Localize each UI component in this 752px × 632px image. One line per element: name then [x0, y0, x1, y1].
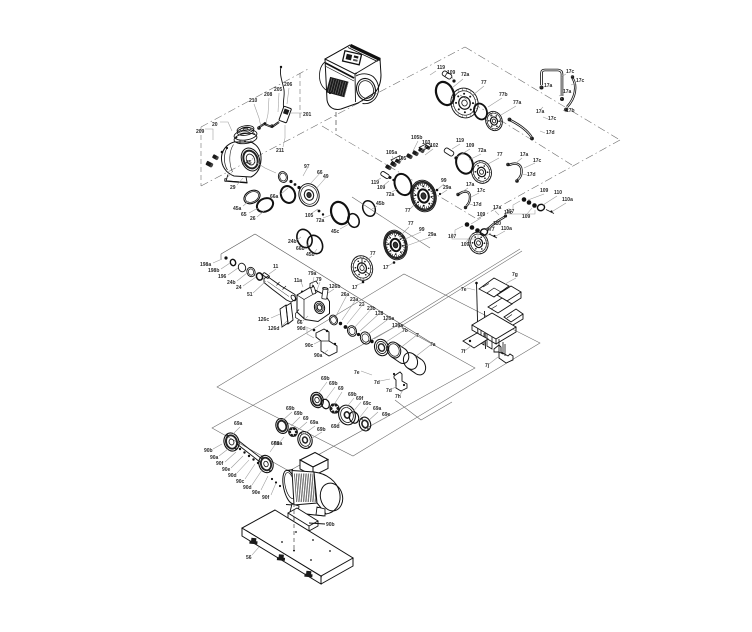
- svg-text:56: 56: [246, 555, 252, 561]
- svg-text:105b: 105b: [411, 135, 422, 141]
- svg-text:109: 109: [522, 214, 531, 220]
- svg-text:7g: 7g: [512, 272, 518, 278]
- svg-text:109: 109: [447, 70, 456, 76]
- svg-text:208: 208: [264, 92, 273, 98]
- svg-text:126c: 126c: [258, 317, 269, 323]
- svg-text:24b: 24b: [288, 239, 297, 245]
- svg-text:17a: 17a: [493, 205, 502, 211]
- svg-text:17a: 17a: [520, 152, 529, 158]
- svg-text:69b: 69b: [294, 411, 303, 417]
- svg-text:77: 77: [370, 251, 376, 257]
- svg-text:7d: 7d: [374, 380, 380, 386]
- svg-text:126d: 126d: [268, 326, 279, 332]
- svg-text:69c: 69c: [363, 401, 372, 407]
- svg-text:99: 99: [441, 178, 447, 184]
- svg-text:69a: 69a: [310, 420, 319, 426]
- svg-text:90d: 90d: [297, 326, 306, 332]
- svg-text:7d: 7d: [386, 388, 392, 394]
- svg-text:119: 119: [437, 65, 445, 71]
- svg-text:17c: 17c: [576, 78, 585, 84]
- svg-text:110a: 110a: [501, 226, 512, 232]
- svg-text:119: 119: [456, 138, 464, 144]
- svg-text:17: 17: [352, 285, 358, 291]
- svg-text:24: 24: [236, 285, 242, 291]
- svg-text:77: 77: [408, 221, 414, 227]
- svg-text:72a: 72a: [461, 72, 470, 78]
- svg-text:69: 69: [338, 386, 344, 392]
- svg-text:17a: 17a: [563, 89, 572, 95]
- svg-text:69b: 69b: [329, 381, 338, 387]
- svg-text:90e: 90e: [252, 490, 261, 496]
- svg-text:201: 201: [303, 112, 312, 118]
- svg-text:77: 77: [497, 152, 503, 158]
- svg-text:24b: 24b: [227, 280, 236, 286]
- svg-text:102: 102: [430, 143, 439, 149]
- svg-text:105: 105: [305, 213, 314, 219]
- svg-text:17d: 17d: [546, 130, 555, 136]
- svg-text:206: 206: [284, 82, 293, 88]
- svg-text:45b: 45b: [306, 252, 315, 258]
- svg-text:17: 17: [383, 265, 389, 271]
- svg-text:29: 29: [230, 185, 236, 191]
- svg-text:205: 205: [274, 87, 283, 93]
- svg-text:109: 109: [377, 185, 386, 191]
- svg-text:17b: 17b: [566, 108, 575, 114]
- svg-text:69b: 69b: [317, 427, 326, 433]
- svg-text:17d: 17d: [473, 202, 482, 208]
- svg-text:26: 26: [250, 216, 256, 222]
- svg-text:69d: 69d: [331, 424, 340, 430]
- svg-text:110: 110: [554, 190, 562, 196]
- svg-text:7f: 7f: [461, 349, 466, 355]
- svg-text:69: 69: [303, 416, 309, 422]
- svg-text:126b: 126b: [329, 284, 340, 290]
- svg-text:99: 99: [419, 227, 425, 233]
- svg-text:29a: 29a: [428, 232, 437, 238]
- svg-text:209: 209: [196, 129, 205, 135]
- svg-text:90b: 90b: [204, 448, 213, 454]
- svg-text:90c: 90c: [305, 343, 314, 349]
- svg-text:109: 109: [461, 242, 470, 248]
- svg-text:69a: 69a: [234, 421, 243, 427]
- svg-text:45: 45: [246, 160, 252, 166]
- svg-text:105a: 105a: [386, 150, 397, 156]
- svg-text:65: 65: [241, 212, 247, 218]
- svg-text:90d: 90d: [243, 485, 252, 491]
- svg-text:66b: 66b: [296, 246, 305, 252]
- svg-text:90a: 90a: [314, 353, 323, 359]
- svg-text:90f: 90f: [262, 495, 270, 501]
- svg-text:210: 210: [249, 98, 258, 104]
- svg-text:72a: 72a: [316, 218, 325, 224]
- svg-text:17c: 17c: [548, 116, 557, 122]
- svg-text:17d: 17d: [527, 172, 536, 178]
- svg-text:66a: 66a: [270, 194, 279, 200]
- svg-text:17a: 17a: [466, 182, 475, 188]
- svg-text:7: 7: [416, 333, 419, 339]
- svg-text:45c: 45c: [331, 229, 340, 235]
- svg-text:7e: 7e: [354, 370, 360, 376]
- svg-text:109: 109: [540, 188, 549, 194]
- svg-text:69a: 69a: [373, 406, 382, 412]
- svg-text:49: 49: [323, 174, 329, 180]
- svg-text:7e: 7e: [461, 287, 467, 293]
- svg-text:79: 79: [316, 277, 322, 283]
- svg-text:72a: 72a: [386, 192, 395, 198]
- svg-text:77a: 77a: [513, 100, 522, 106]
- svg-text:90b: 90b: [326, 522, 335, 528]
- svg-text:26a: 26a: [341, 292, 350, 298]
- svg-text:17c: 17c: [566, 69, 575, 75]
- svg-text:51: 51: [247, 292, 253, 298]
- svg-text:109: 109: [477, 212, 486, 218]
- svg-text:211: 211: [276, 148, 284, 154]
- svg-text:6: 6: [224, 178, 227, 184]
- svg-text:20: 20: [212, 122, 218, 128]
- svg-text:196: 196: [218, 274, 227, 280]
- svg-text:45b: 45b: [376, 201, 385, 207]
- svg-text:29a: 29a: [443, 185, 452, 191]
- svg-text:17a: 17a: [544, 83, 553, 89]
- svg-text:110a: 110a: [562, 197, 573, 203]
- svg-text:109: 109: [466, 143, 475, 149]
- svg-text:72a: 72a: [478, 148, 487, 154]
- svg-text:23: 23: [359, 302, 365, 308]
- svg-text:77b: 77b: [499, 92, 508, 98]
- svg-text:77: 77: [481, 80, 487, 86]
